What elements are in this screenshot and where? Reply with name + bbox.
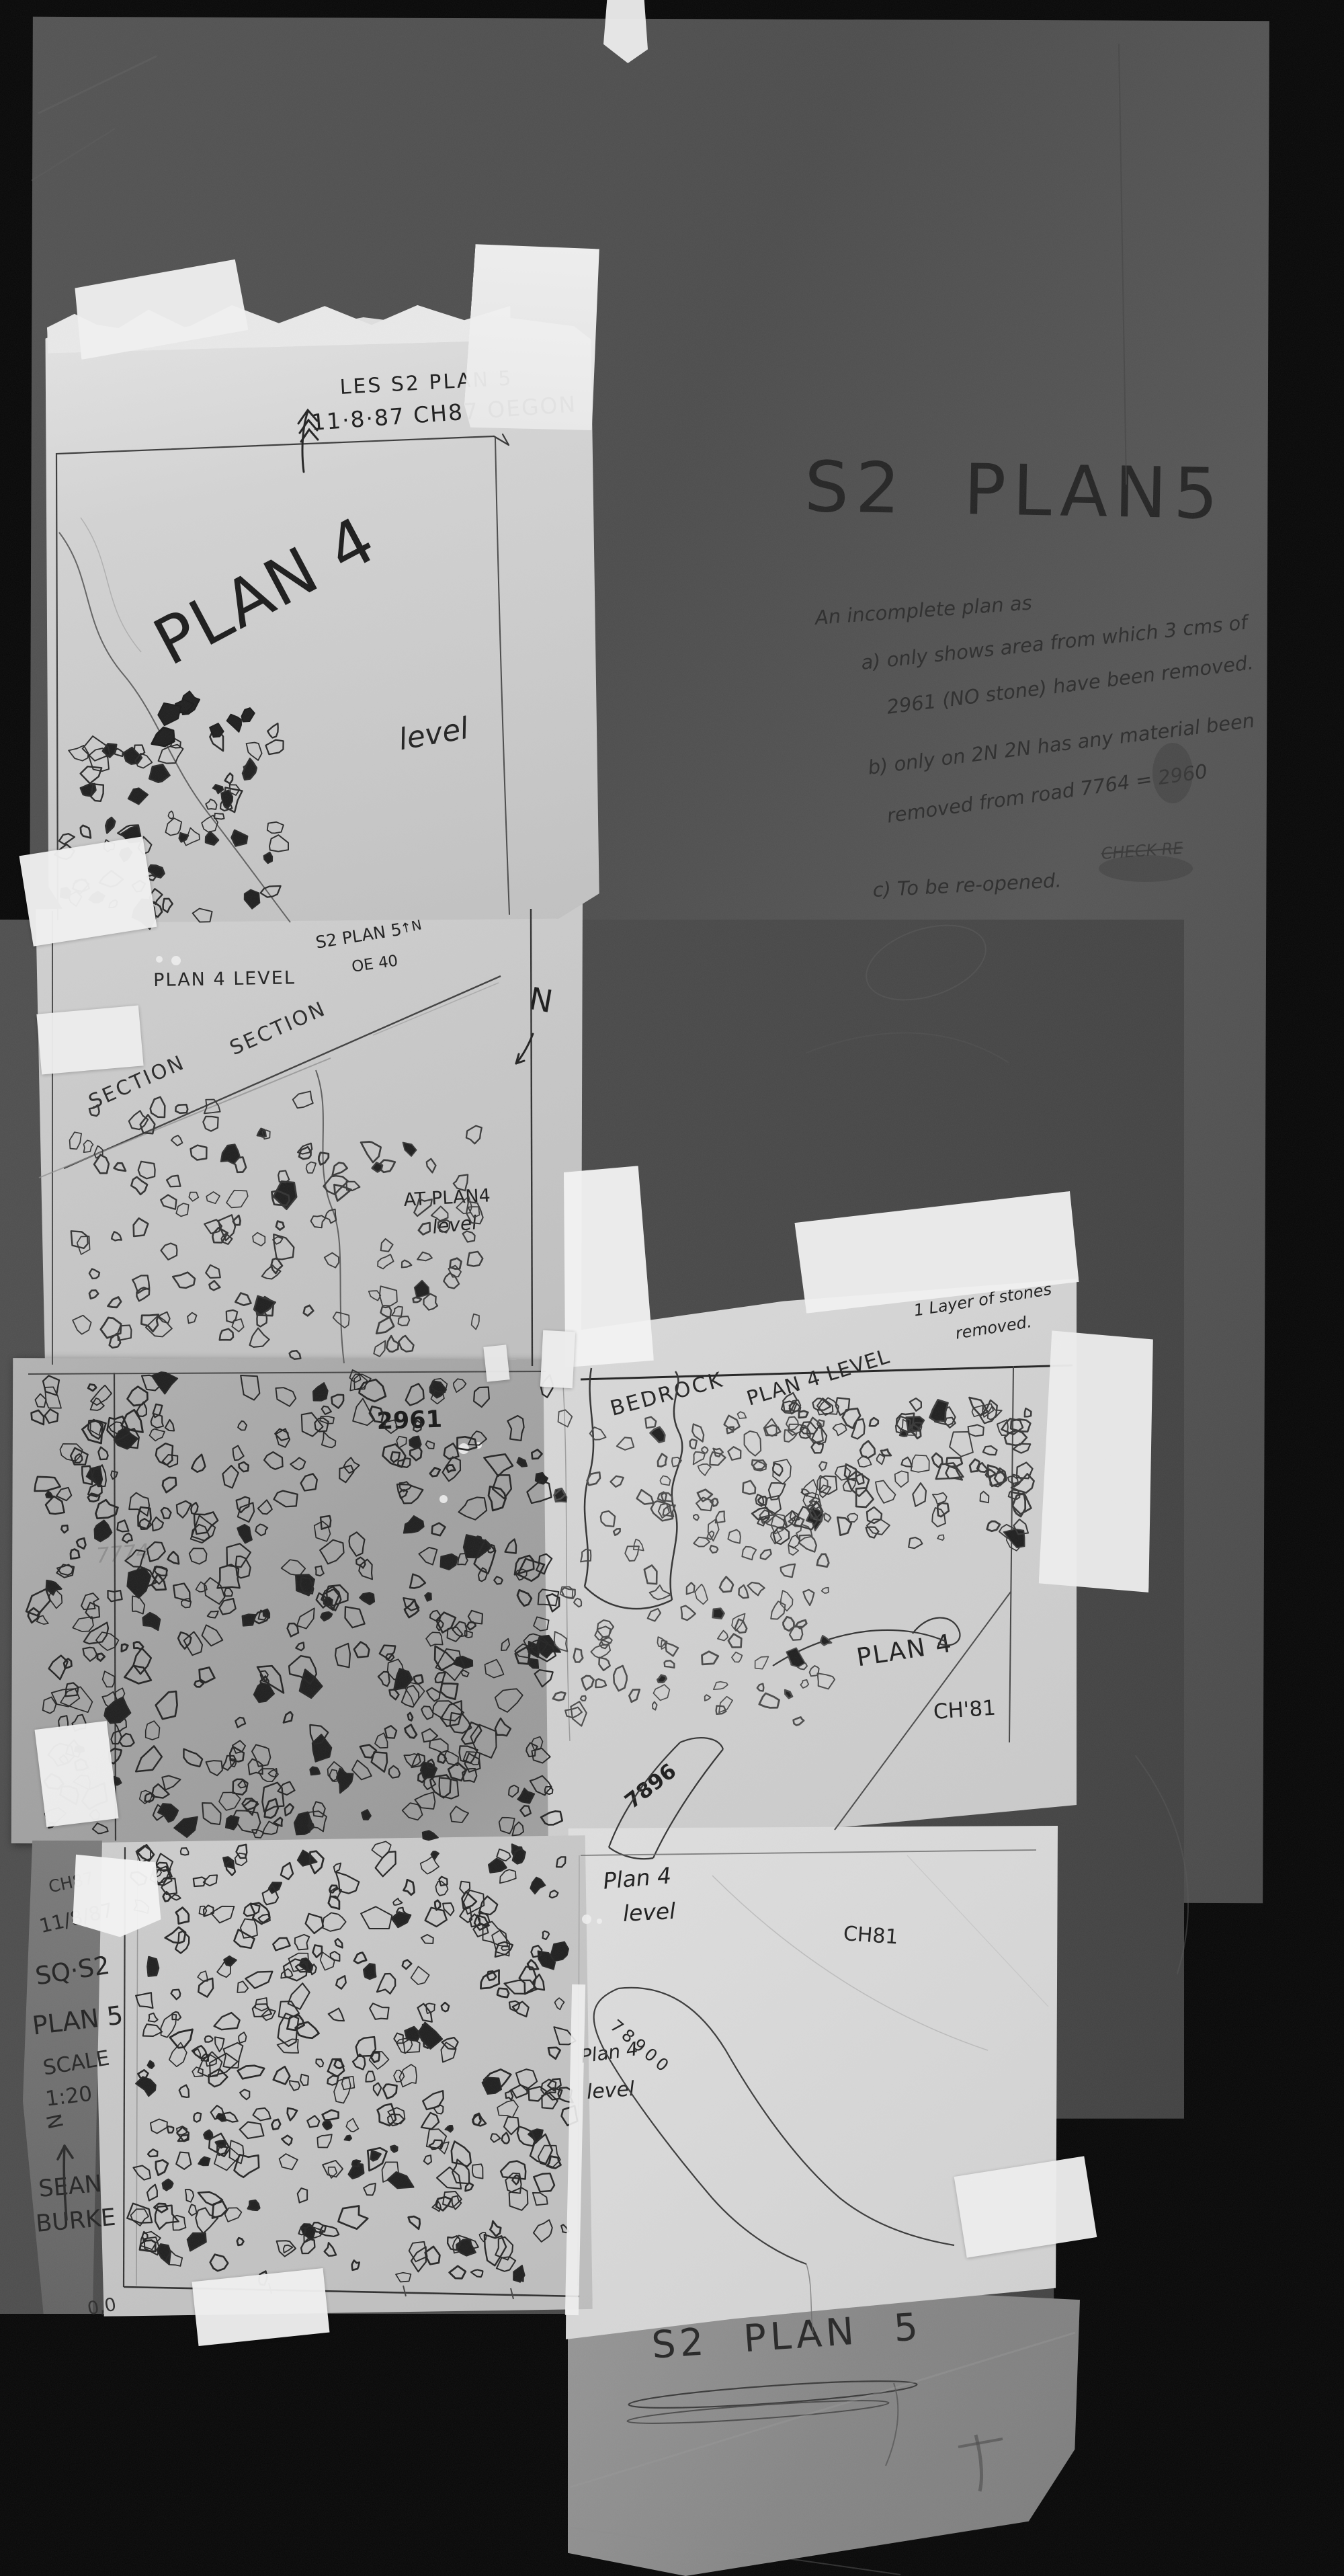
sheet-f-level-note1-line2: level — [622, 1900, 676, 1925]
tape-piece — [463, 241, 605, 436]
sheet-f-level-note2-line2: level — [586, 2079, 635, 2103]
tape-piece — [483, 1344, 509, 1381]
tape-piece — [1038, 1328, 1158, 1595]
context-number-7774: 7774 — [95, 1541, 150, 1567]
sheet-f-ch-label: CH81 — [843, 1924, 899, 1948]
context-number-2961: 2961 — [376, 1408, 443, 1434]
sheet-f-level-note1-line1: Plan 4 — [602, 1864, 672, 1892]
origin-coordinate-label: 0,0 — [86, 2296, 118, 2319]
plan-sheet-b — [36, 899, 587, 1371]
sheet-b-level-label: PLAN 4 LEVEL — [153, 969, 296, 990]
plan-sheet-d — [543, 1279, 1077, 1845]
margin-scale-value: 1:20 — [44, 2084, 93, 2110]
tape-piece — [35, 1721, 119, 1827]
sheet-b-at-plan-line1: AT PLAN4 — [403, 1186, 491, 1209]
card-title: S2 PLAN5 — [804, 452, 1225, 529]
surveyor-name-line1: SEAN — [38, 2173, 103, 2202]
scanned-plan-page: LES S2 PLAN 5 11·8·87 CH87 OEGON PLAN 4 … — [0, 0, 1344, 2576]
tape-piece — [19, 836, 157, 946]
sheet-b-at-plan-line2: level — [431, 1213, 478, 1237]
surveyor-name-line2: BURKE — [35, 2206, 117, 2237]
sheet-b-corner-north-mark: ↑N — [399, 918, 423, 935]
tape-piece — [36, 1006, 143, 1075]
tape-piece — [540, 1330, 575, 1388]
tape-piece — [192, 2268, 330, 2346]
sheet-d-ch-label: CH'81 — [933, 1698, 997, 1723]
plan-sheet-e — [91, 1835, 593, 2317]
